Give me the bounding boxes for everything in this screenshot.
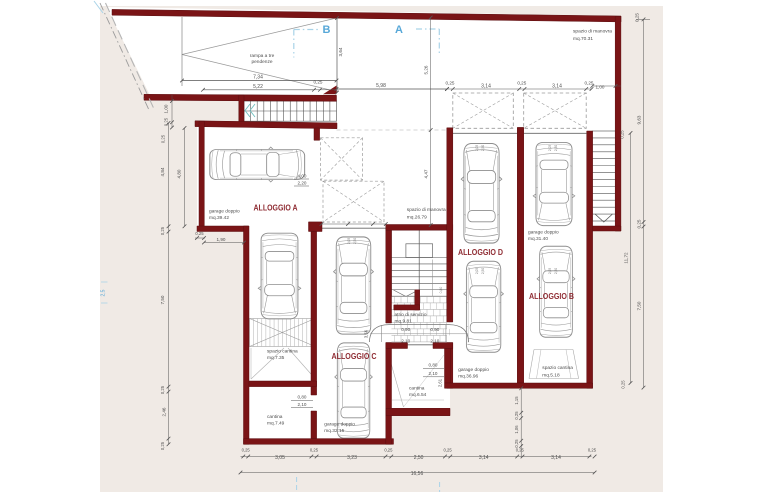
- svg-text:3,05: 3,05: [275, 455, 285, 461]
- svg-text:mq.26.79: mq.26.79: [407, 215, 427, 221]
- svg-text:mq.9.81: mq.9.81: [395, 319, 413, 325]
- svg-text:3,56: 3,56: [364, 329, 369, 338]
- svg-text:2,50: 2,50: [353, 238, 357, 244]
- svg-text:5,98: 5,98: [376, 83, 386, 89]
- svg-text:1,90: 1,90: [217, 237, 226, 242]
- svg-text:0,25: 0,25: [314, 80, 323, 85]
- svg-text:2,50: 2,50: [554, 268, 558, 274]
- svg-text:0,80: 0,80: [298, 395, 307, 400]
- svg-text:2,05: 2,05: [548, 268, 552, 274]
- svg-text:ALLOGGIO B: ALLOGGIO B: [529, 292, 574, 301]
- svg-text:0,25: 0,25: [446, 81, 455, 86]
- svg-text:0,25: 0,25: [160, 226, 165, 235]
- svg-text:3,14: 3,14: [479, 455, 489, 461]
- svg-text:spazio cantina: spazio cantina: [542, 365, 573, 371]
- svg-text:2,05: 2,05: [475, 268, 479, 274]
- svg-text:7,50: 7,50: [637, 301, 642, 310]
- svg-text:2,20: 2,20: [298, 181, 307, 186]
- svg-text:garage doppio: garage doppio: [458, 367, 489, 373]
- svg-text:3,14: 3,14: [551, 455, 561, 461]
- svg-text:atrio di servizio: atrio di servizio: [395, 312, 427, 318]
- svg-text:0,25: 0,25: [242, 448, 251, 453]
- svg-text:2,61: 2,61: [438, 378, 443, 387]
- svg-text:ALLOGGIO A: ALLOGGIO A: [254, 204, 298, 213]
- svg-text:ALLOGGIO D: ALLOGGIO D: [458, 248, 503, 257]
- svg-text:2,10: 2,10: [429, 371, 438, 376]
- svg-text:0,25: 0,25: [160, 385, 165, 394]
- svg-text:3,14: 3,14: [552, 84, 562, 90]
- svg-text:3,14: 3,14: [481, 84, 491, 90]
- svg-text:cantina: cantina: [409, 386, 425, 392]
- svg-text:1,15: 1,15: [514, 396, 519, 405]
- svg-text:mq.36.96: mq.36.96: [458, 374, 478, 380]
- svg-text:1,00: 1,00: [596, 85, 605, 90]
- svg-text:2,05: 2,05: [475, 145, 479, 151]
- svg-text:5,26: 5,26: [424, 65, 429, 74]
- svg-text:0,25: 0,25: [620, 130, 625, 139]
- svg-text:0,25: 0,25: [161, 134, 166, 143]
- svg-text:0,25: 0,25: [637, 219, 642, 228]
- svg-text:3,64: 3,64: [338, 47, 343, 56]
- svg-text:9,63: 9,63: [637, 115, 642, 124]
- svg-text:0,25: 0,25: [514, 439, 519, 448]
- svg-text:0,80: 0,80: [429, 363, 438, 368]
- svg-text:mq.5.18: mq.5.18: [542, 373, 560, 379]
- svg-text:mq.70.31: mq.70.31: [573, 36, 593, 42]
- svg-text:2,10: 2,10: [430, 339, 439, 344]
- svg-text:2,05: 2,05: [347, 238, 351, 244]
- svg-text:5,22: 5,22: [253, 84, 263, 90]
- svg-text:ALLOGGIO C: ALLOGGIO C: [332, 352, 377, 361]
- svg-text:4,47: 4,47: [424, 169, 429, 178]
- svg-text:rampa a tre: rampa a tre: [250, 53, 275, 59]
- svg-text:2,05: 2,05: [548, 145, 552, 151]
- svg-text:mq.39.42: mq.39.42: [209, 215, 229, 221]
- svg-text:0,25: 0,25: [585, 81, 594, 86]
- svg-text:0,25: 0,25: [384, 448, 393, 453]
- svg-text:spazio cantina: spazio cantina: [267, 349, 298, 355]
- svg-text:garage doppio: garage doppio: [324, 422, 355, 428]
- svg-text:mq.32.15: mq.32.15: [324, 428, 344, 434]
- svg-text:0,90: 0,90: [401, 327, 410, 332]
- svg-text:B: B: [323, 24, 331, 36]
- svg-text:garage doppio: garage doppio: [209, 209, 240, 215]
- svg-text:garage doppio: garage doppio: [528, 230, 559, 236]
- svg-text:0,80: 0,80: [439, 287, 443, 294]
- svg-text:2,50: 2,50: [481, 145, 485, 151]
- svg-text:0,25: 0,25: [635, 13, 640, 22]
- svg-text:2,10: 2,10: [401, 339, 410, 344]
- svg-text:mq.7.35: mq.7.35: [267, 355, 285, 361]
- svg-text:2,50: 2,50: [554, 145, 558, 151]
- svg-text:4,84: 4,84: [160, 167, 165, 176]
- svg-text:7,34: 7,34: [253, 75, 263, 81]
- svg-text:1,06: 1,06: [514, 425, 519, 434]
- svg-text:1,00: 1,00: [164, 104, 169, 113]
- svg-text:16,56: 16,56: [411, 471, 424, 477]
- svg-text:0,25: 0,25: [195, 231, 204, 236]
- svg-text:0,25: 0,25: [588, 448, 597, 453]
- svg-text:0,25: 0,25: [164, 117, 169, 126]
- svg-text:A: A: [395, 24, 403, 36]
- svg-text:0,90: 0,90: [430, 327, 439, 332]
- svg-text:spazio di manovra: spazio di manovra: [407, 207, 446, 213]
- svg-text:2,50: 2,50: [414, 455, 424, 461]
- svg-text:spazio di manovra: spazio di manovra: [573, 29, 612, 35]
- svg-text:11,72: 11,72: [624, 252, 629, 264]
- svg-text:pendenze: pendenze: [251, 59, 272, 65]
- svg-text:mq.7.49: mq.7.49: [267, 421, 285, 427]
- svg-text:cantina: cantina: [267, 414, 283, 420]
- svg-text:0,25: 0,25: [514, 411, 519, 420]
- svg-text:4,00: 4,00: [298, 174, 307, 179]
- svg-text:2,10: 2,10: [298, 402, 307, 407]
- svg-text:2,50: 2,50: [481, 268, 485, 274]
- svg-text:mq.31.40: mq.31.40: [528, 236, 548, 242]
- svg-text:0,25: 0,25: [310, 448, 319, 453]
- svg-text:mq.6.54: mq.6.54: [409, 392, 427, 398]
- svg-text:4,80: 4,80: [177, 169, 182, 178]
- svg-text:0,25: 0,25: [160, 441, 165, 450]
- svg-text:0,25: 0,25: [621, 380, 626, 389]
- svg-text:2,46: 2,46: [162, 407, 167, 416]
- svg-text:2,5: 2,5: [101, 289, 107, 296]
- svg-text:0,25: 0,25: [517, 81, 526, 86]
- svg-text:7,50: 7,50: [160, 295, 165, 304]
- svg-text:3,23: 3,23: [347, 455, 357, 461]
- svg-text:0,25: 0,25: [444, 448, 453, 453]
